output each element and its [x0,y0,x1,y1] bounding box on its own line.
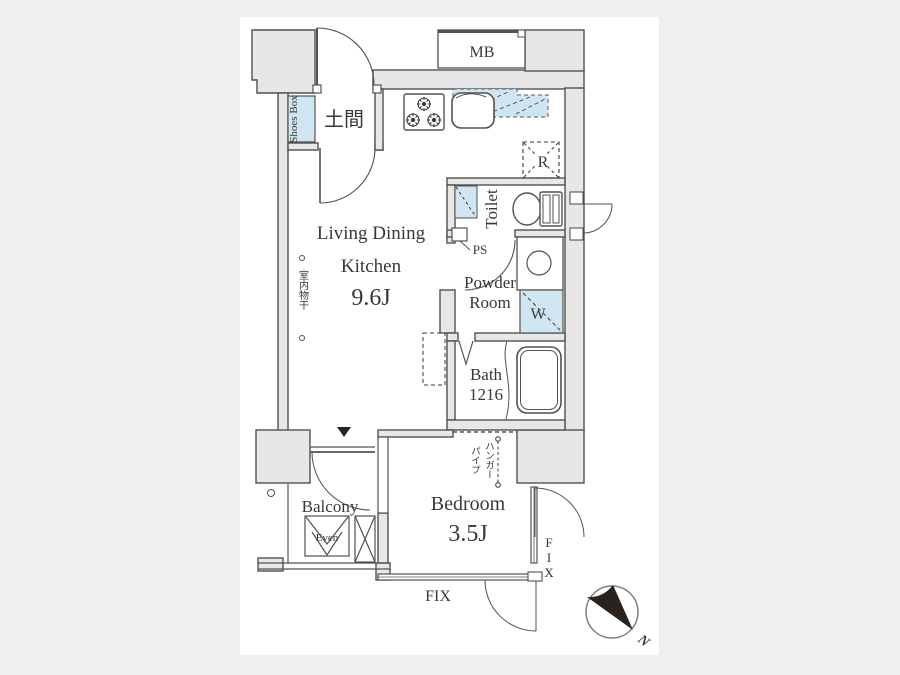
wall-left [278,93,288,431]
hanger-pipe-end [496,437,501,442]
mb-box: MB [438,30,525,68]
toilet-bowl [513,193,541,225]
hanger-pipe-label-col2: パイプ [469,446,481,475]
wall-bath-left [447,341,455,420]
bedroom-size-label: 3.5J [448,521,487,547]
indoor-laundry-label: 室内物干 [297,269,309,311]
door-frame-post [570,192,583,204]
wall-left-lower-block [256,430,310,483]
fix-right-label: FIX [542,535,557,580]
balcony-label: Balcony [302,497,359,516]
refrigerator-label: R [538,154,549,171]
hanger-pipe-label-col1: ハンガー [483,441,495,479]
wall-powder-bottom-right [475,333,565,341]
ldk-label-line2: Kitchen [341,256,402,277]
toilet-tank-detail [543,195,550,223]
wall-toilet-bottom-right [515,230,565,237]
toilet-label: Toilet [482,189,501,229]
bedroom-sliding-door [378,437,388,513]
mb-corner-detail [518,30,525,37]
wall-powder-left-lower [440,290,455,333]
doma-label: 土間 [324,108,364,131]
door-frame-post [528,572,542,581]
wall-doma-right [375,89,383,150]
wall-doma-bottom-left [288,143,318,150]
bedroom-label: Bedroom [431,493,506,515]
washer-label: W [530,306,546,323]
partition-x-box [355,516,375,562]
fix-bottom-label: FIX [425,588,451,605]
wall-under-bath-block [517,430,584,483]
vanity-basin [527,251,551,275]
shoes-box-label-line1: Shoes Box [288,95,300,143]
ldk-label-line1: Living Dining [317,223,426,244]
mb-label: MB [470,44,495,61]
pipe-space-box [452,228,467,241]
floorplan-image: Shoes Box 土間 MB [0,0,900,675]
washer-space: W [520,290,563,333]
door-frame-post [570,228,583,240]
wall-bath-bottom [447,420,565,430]
wall-top-band [373,70,584,89]
wall-top-left-block [252,30,315,93]
powder-room-label-line2: Room [469,293,511,312]
door-frame-post [313,85,321,93]
ldk-size-label: 9.6J [351,285,390,311]
wall-toilet-top [447,178,565,185]
bathtub [517,347,561,413]
powder-room-label-line1: Powder [464,273,516,292]
wall-bedroom-top [378,430,453,437]
evacuation-hatch-label: Even [316,532,339,544]
wall-powder-bottom-left [447,333,458,341]
bath-label-line2: 1216 [469,385,503,404]
pipe-space-label: PS [473,242,487,257]
toilet-tank-detail [553,195,559,223]
floorplan-svg: Shoes Box 土間 MB [0,0,900,675]
kitchen-sink [452,93,494,128]
hanger-pipe-end [496,483,501,488]
wall-top-right-block [525,30,584,71]
wall-right [565,88,584,431]
bath-label-line1: Bath [470,365,503,384]
door-frame-post [373,85,381,93]
